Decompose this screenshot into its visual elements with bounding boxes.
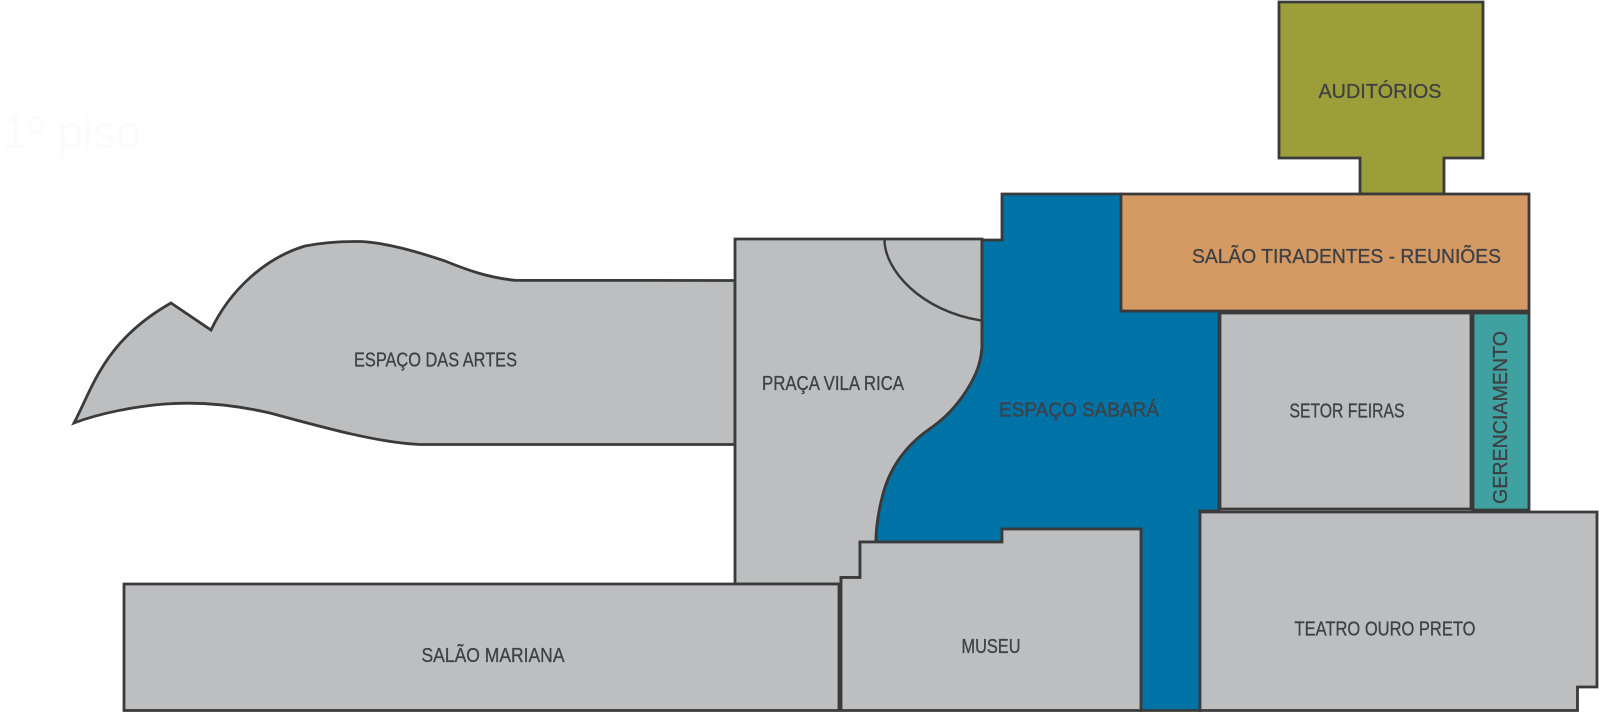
svg-text:MUSEU: MUSEU [962, 635, 1021, 658]
svg-text:SALÃO MARIANA: SALÃO MARIANA [422, 644, 565, 667]
svg-text:GERENCIAMENTO: GERENCIAMENTO [1489, 331, 1512, 504]
svg-text:SALÃO TIRADENTES - REUNIÕES: SALÃO TIRADENTES - REUNIÕES [1192, 245, 1501, 268]
svg-text:ESPAÇO DAS ARTES: ESPAÇO DAS ARTES [354, 349, 517, 372]
svg-text:AUDITÓRIOS: AUDITÓRIOS [1319, 80, 1442, 103]
svg-text:PRAÇA VILA RICA: PRAÇA VILA RICA [762, 372, 904, 395]
svg-text:1º piso: 1º piso [2, 106, 142, 158]
svg-text:ESPAÇO SABARÁ: ESPAÇO SABARÁ [999, 399, 1159, 422]
svg-text:TEATRO OURO PRETO: TEATRO OURO PRETO [1295, 618, 1476, 641]
svg-text:SETOR FEIRAS: SETOR FEIRAS [1290, 400, 1405, 423]
